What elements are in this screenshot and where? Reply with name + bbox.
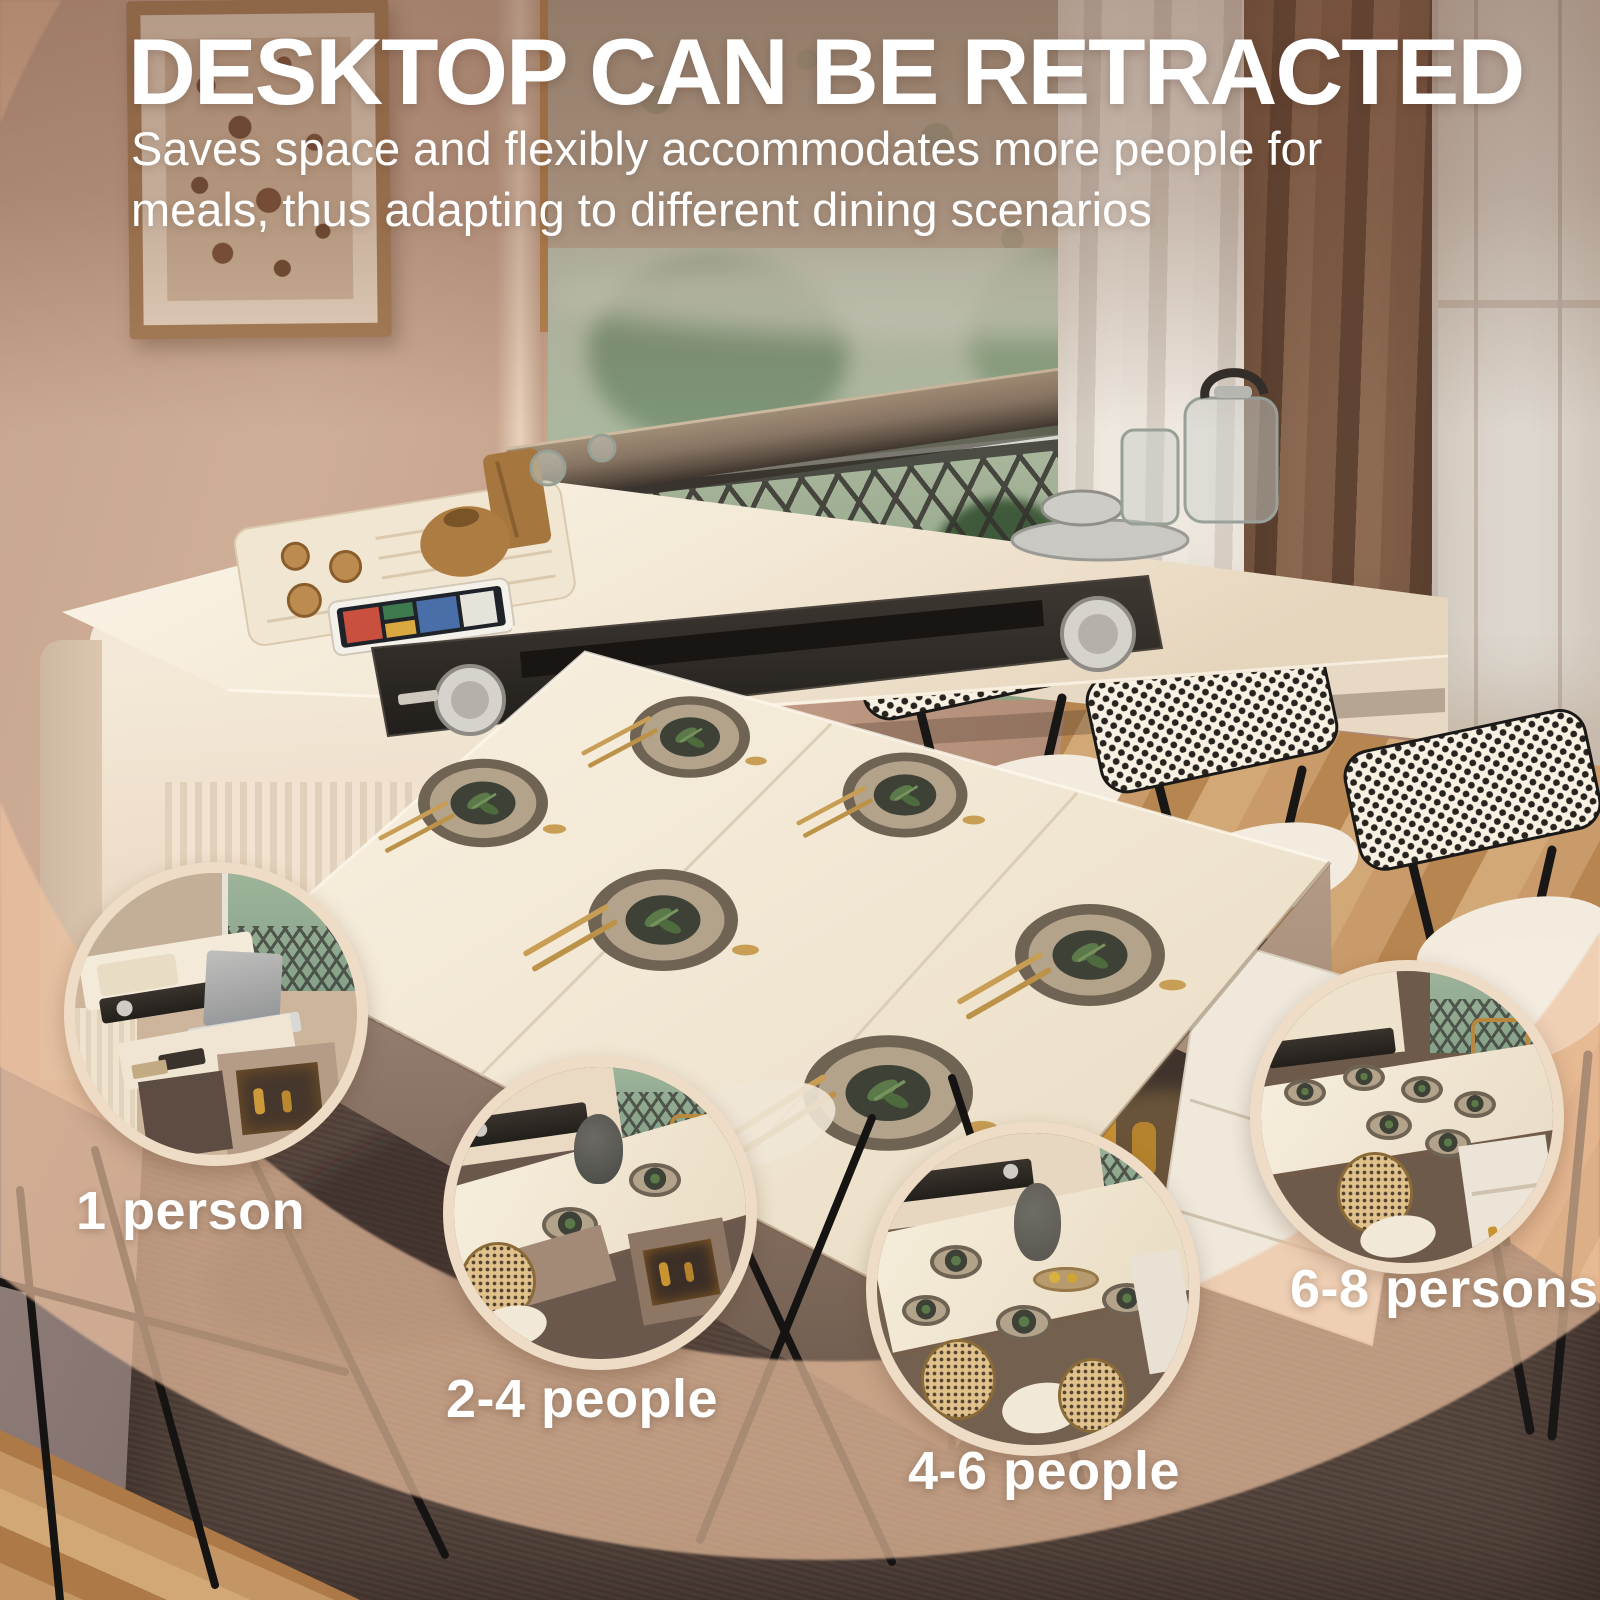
mini-cup [1275,988,1290,1003]
inset-photo-2-4-people [443,1056,757,1370]
mini-fruit [1049,1272,1060,1283]
page-title: DESKTOP CAN BE RETRACTED [128,18,1523,126]
mini-rattan-chair [1058,1358,1127,1433]
label-6-8-persons: 6-8 persons [1290,1258,1599,1320]
mini-storage [628,1217,739,1326]
mini-knob [115,998,133,1016]
mini-floor [138,1071,233,1161]
mini-bottle [280,1090,291,1113]
mini-drawers [1459,1135,1560,1251]
label-4-6-people: 4-6 people [908,1440,1180,1502]
mini-knob [472,1121,488,1137]
mini-bottle [683,1261,694,1282]
mini-vase [574,1114,624,1184]
label-1-person: 1 person [76,1180,305,1242]
subtitle: Saves space and flexibly accommodates mo… [131,118,1322,240]
mini-fruit-tray [1033,1267,1099,1292]
mini-vase [1014,1183,1061,1261]
mini-plate [996,1305,1052,1341]
product-infographic: DESKTOP CAN BE RETRACTED Saves space and… [0,0,1600,1600]
mini-bottle [252,1088,265,1115]
label-2-4-people: 2-4 people [446,1368,718,1430]
mini-lower-cabinet [217,1042,345,1155]
mini-fruit [1067,1273,1077,1283]
inset-photo-6-8-persons [1250,960,1564,1274]
mini-book [132,1059,169,1079]
mini-bottle [659,1262,672,1287]
mini-drawer-seam [1472,1183,1545,1197]
mini-plate [902,1295,950,1326]
mini-rattan-chair [921,1339,996,1420]
mini-plate [1454,1091,1496,1118]
mini-cabinet-opening [235,1062,324,1135]
mini-storage-opening [642,1238,720,1305]
mini-knob [1003,1164,1020,1181]
subtitle-line2: meals, thus adapting to different dining… [131,179,1322,240]
inset-photo-1-person [64,862,368,1166]
mini-bottle [1488,1227,1499,1244]
inset-photo-4-6-people [866,1122,1200,1456]
subtitle-line1: Saves space and flexibly accommodates mo… [131,118,1322,179]
mini-plate [1401,1076,1443,1103]
